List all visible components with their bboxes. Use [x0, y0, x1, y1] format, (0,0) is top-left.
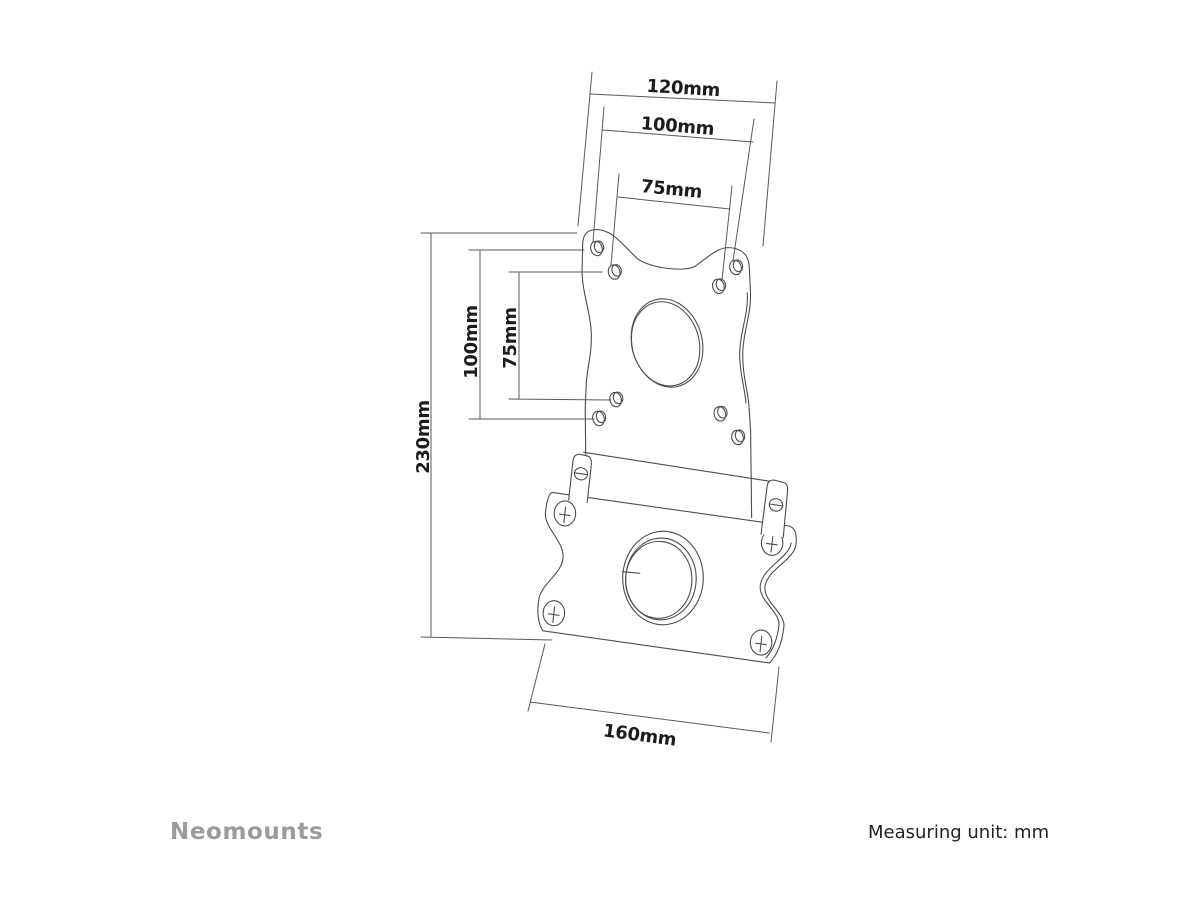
dim-label-75mm-top: 75mm	[640, 176, 703, 203]
dim-label-100mm-left: 100mm	[461, 305, 482, 379]
vesa-adapter-diagram: 120mm 100mm 75mm 230mm 100mm 75mm 160mm …	[0, 0, 1200, 900]
vesa-adapter-diagram-page: 120mm 100mm 75mm 230mm 100mm 75mm 160mm …	[0, 0, 1200, 900]
dim-label-120mm: 120mm	[646, 76, 721, 101]
dim-label-100mm-top: 100mm	[640, 113, 715, 140]
measuring-unit-note: Measuring unit: mm	[868, 822, 1049, 843]
dim-label-75mm-left: 75mm	[500, 307, 521, 368]
dim-label-160mm: 160mm	[602, 720, 678, 750]
lower-plate-outline	[533, 492, 798, 665]
brand-logo-neomounts: Neomounts	[170, 819, 323, 845]
lower-mount-plate	[533, 492, 798, 665]
dim-label-230mm: 230mm	[413, 400, 434, 474]
dimension-100mm-left	[469, 250, 594, 419]
